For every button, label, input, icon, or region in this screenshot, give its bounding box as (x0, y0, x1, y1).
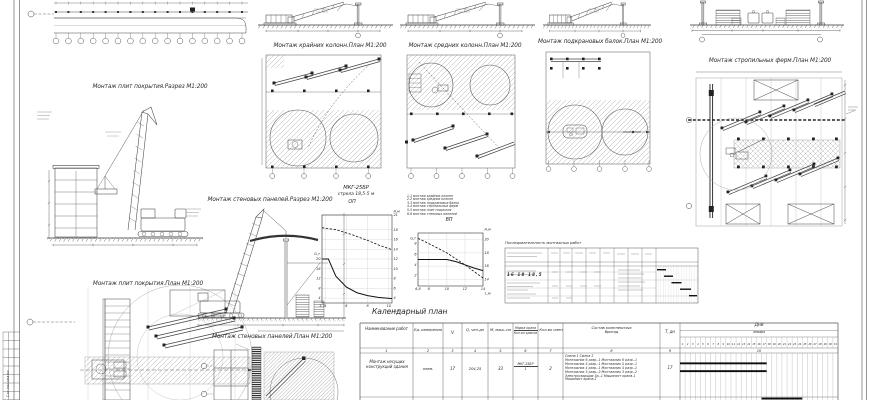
title-trusses: Монтаж стропильных ферм.План М1:200 (695, 58, 845, 64)
chart2-label: ВП (435, 218, 463, 223)
stamp-label: Согласовано (7, 370, 11, 397)
calendar-h7: Кол-во смен (539, 328, 563, 332)
row1-name: Монтаж несущих конструкций здания (362, 359, 412, 369)
sequence-legend: 1-1 монтаж крайних колонн 2-2 монтаж сре… (407, 195, 459, 217)
calendar-title: Календарный план (372, 308, 447, 316)
row1-machine-shifts: 33 (488, 367, 513, 371)
calendar-month: января (680, 331, 838, 335)
crane-model-label: МКГ-25БР (330, 186, 382, 192)
calendar-h3: V (443, 331, 462, 336)
calendar-h2: Ед. измерения (414, 328, 442, 332)
row1-duration: 17 (660, 366, 680, 370)
title-roof-plan: Монтаж плит покрытия.План М1:200 (73, 281, 223, 287)
blueprint-sheet: 3,74681048121620468101214161821G,тН,мL,м… (0, 0, 870, 400)
calendar-h6-crane: Марка крана (514, 326, 538, 330)
title-wall-section: Монтаж стеновых панелей.Разрез М1:200 (195, 197, 345, 203)
title-edge-columns: Монтаж крайних колонн.План М1:200 (260, 43, 400, 49)
sequence-table-title: Последовательность монтажных работ (505, 241, 581, 245)
calendar-h6-count: Кол-во кранов (514, 330, 538, 335)
calendar-h6: Марка кранаКол-во кранов (514, 326, 538, 335)
row1-crew: Смена 1 Смена 2 Монтажник 6 разр.-1 Монт… (565, 355, 659, 382)
calendar-h5: М, маш.-см (488, 328, 513, 332)
title-crane-beams: Монтаж подкрановых балок.План М1:200 (525, 39, 675, 45)
row1-crane-count: 1 (514, 366, 538, 371)
calendar-h1: Наименование работ (361, 327, 412, 331)
row1-crane: МКГ-25БР1 (514, 362, 538, 371)
row1-volume: 17 (443, 367, 462, 371)
text-layer: Монтаж плит покрытия.Разрез М1:200 Монта… (0, 0, 870, 400)
row1-labor: 204,25 (462, 367, 488, 371)
row1-shifts: 2 (538, 367, 563, 371)
title-mid-columns: Монтаж средних колонн.План М1:200 (395, 43, 535, 49)
boom-label: стрела 18,5-5 м (326, 192, 386, 197)
row1-crane-model: МКГ-25БР (514, 362, 538, 366)
calendar-h9: Т, дн (660, 330, 680, 334)
calendar-h4: Q, чел-дн (462, 328, 488, 332)
title-wall-plan: Монтаж стеновых панелей.План М1:200 (197, 334, 347, 340)
title-roof-section: Монтаж плит покрытия.Разрез М1:200 (75, 84, 225, 90)
chart1-label: ОП (336, 200, 368, 205)
calendar-h8: Состав комплексных бригад (587, 326, 636, 334)
row1-unit: элем. (413, 367, 443, 371)
calendar-h10: Дни (680, 324, 838, 329)
sequence-table-note: 16 18 18,5 (507, 273, 543, 277)
